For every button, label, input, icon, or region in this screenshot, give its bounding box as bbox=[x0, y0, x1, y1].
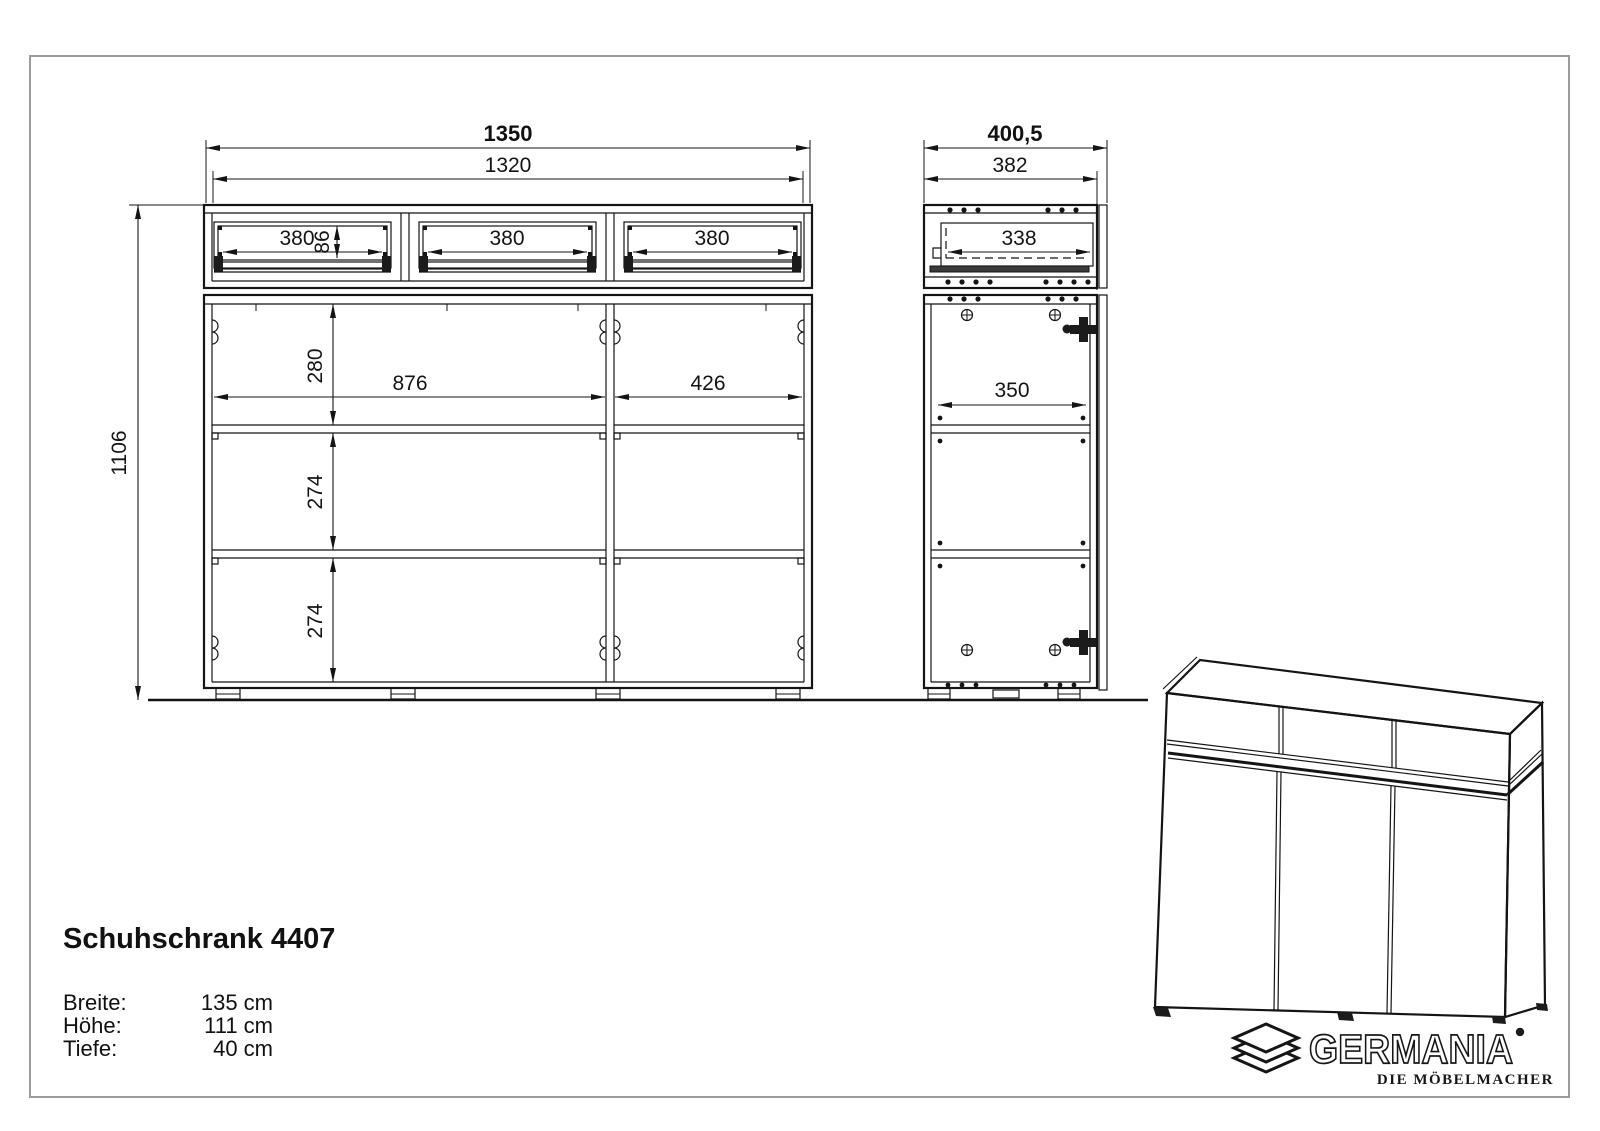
iso-front-face bbox=[1155, 693, 1510, 1017]
spec-label-breite: Breite: bbox=[63, 991, 175, 1014]
front-shelves bbox=[212, 425, 804, 564]
side-door-panel bbox=[1099, 295, 1107, 690]
dim-carcass-depth: 382 bbox=[992, 154, 1027, 177]
side-dimensions: 400,5 382 338 350 bbox=[924, 121, 1107, 405]
spec-value-breite: 135 cm bbox=[175, 991, 273, 1014]
dim-overall-width: 1350 bbox=[484, 121, 533, 146]
dim-top-compartment: 280 bbox=[304, 348, 327, 383]
spec-value-tiefe: 40 cm bbox=[175, 1037, 273, 1060]
brand-layers-icon bbox=[1234, 1024, 1298, 1072]
front-view bbox=[204, 205, 812, 699]
side-feet bbox=[928, 688, 1080, 699]
front-feet bbox=[216, 688, 800, 699]
perspective-view bbox=[1153, 657, 1548, 1024]
spec-row-breite: Breite: 135 cm bbox=[63, 991, 273, 1014]
spec-value-hoehe: 111 cm bbox=[175, 1014, 273, 1037]
brand-wordmark: GERMANIA bbox=[1309, 1026, 1513, 1072]
dim-drawer1-width: 380 bbox=[279, 227, 314, 250]
spec-label-hoehe: Höhe: bbox=[63, 1014, 175, 1037]
front-lower-section bbox=[204, 295, 812, 688]
dim-drawer3-width: 380 bbox=[694, 227, 729, 250]
side-shelves bbox=[931, 416, 1090, 569]
brand-logo: GERMANIA DIE MÖBELMACHER bbox=[1234, 1024, 1554, 1088]
spec-row-tiefe: Tiefe: 40 cm bbox=[63, 1037, 273, 1060]
dim-middle-compartment: 274 bbox=[304, 474, 327, 509]
dim-drawer2-width: 380 bbox=[489, 227, 524, 250]
spec-row-hoehe: Höhe: 111 cm bbox=[63, 1014, 273, 1037]
spec-table: Breite: 135 cm Höhe: 111 cm Tiefe: 40 cm bbox=[63, 991, 273, 1060]
side-view bbox=[924, 205, 1107, 699]
dim-drawer-front-height: 86 bbox=[311, 230, 334, 253]
spec-label-tiefe: Tiefe: bbox=[63, 1037, 175, 1060]
dim-overall-height: 1106 bbox=[108, 430, 131, 475]
iso-right-face bbox=[1505, 703, 1545, 1017]
brand-tagline: DIE MÖBELMACHER bbox=[1377, 1071, 1554, 1088]
side-lower-section bbox=[924, 295, 1097, 688]
side-drawer-front-panel bbox=[1099, 205, 1107, 288]
dim-bottom-compartment: 274 bbox=[304, 603, 327, 638]
front-hinges bbox=[212, 320, 804, 660]
dim-overall-depth: 400,5 bbox=[987, 121, 1042, 146]
iso-top-face bbox=[1167, 660, 1542, 734]
dim-inner-depth: 350 bbox=[994, 379, 1029, 402]
dim-left-compartment: 876 bbox=[392, 372, 427, 395]
side-hinges bbox=[962, 310, 1097, 656]
front-dimensions: 1350 1320 1106 380 86 380 380 280 876 42… bbox=[108, 121, 810, 700]
dim-carcass-width: 1320 bbox=[485, 154, 532, 177]
technical-drawing: 1350 1320 1106 380 86 380 380 280 876 42… bbox=[0, 0, 1600, 1131]
dim-right-compartment: 426 bbox=[690, 372, 725, 395]
brand-trademark-dot bbox=[1516, 1028, 1524, 1036]
product-title: Schuhschrank 4407 bbox=[63, 923, 335, 956]
dim-drawer-depth: 338 bbox=[1001, 227, 1036, 250]
